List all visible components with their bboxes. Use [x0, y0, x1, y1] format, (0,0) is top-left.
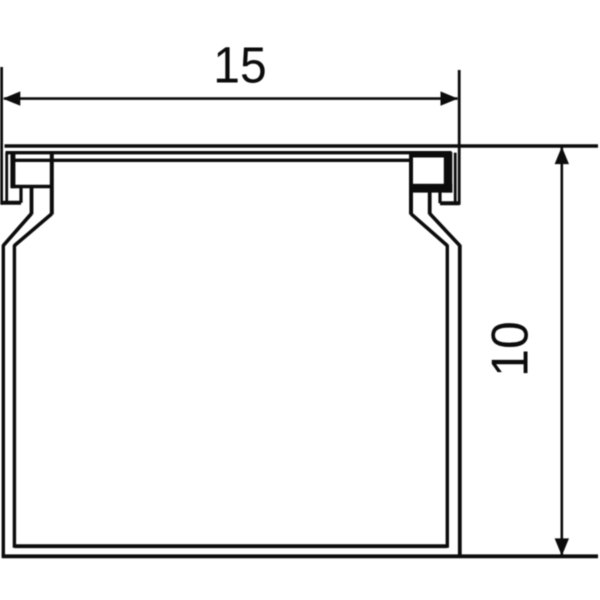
- svg-text:10: 10: [480, 321, 538, 377]
- svg-text:15: 15: [213, 36, 266, 94]
